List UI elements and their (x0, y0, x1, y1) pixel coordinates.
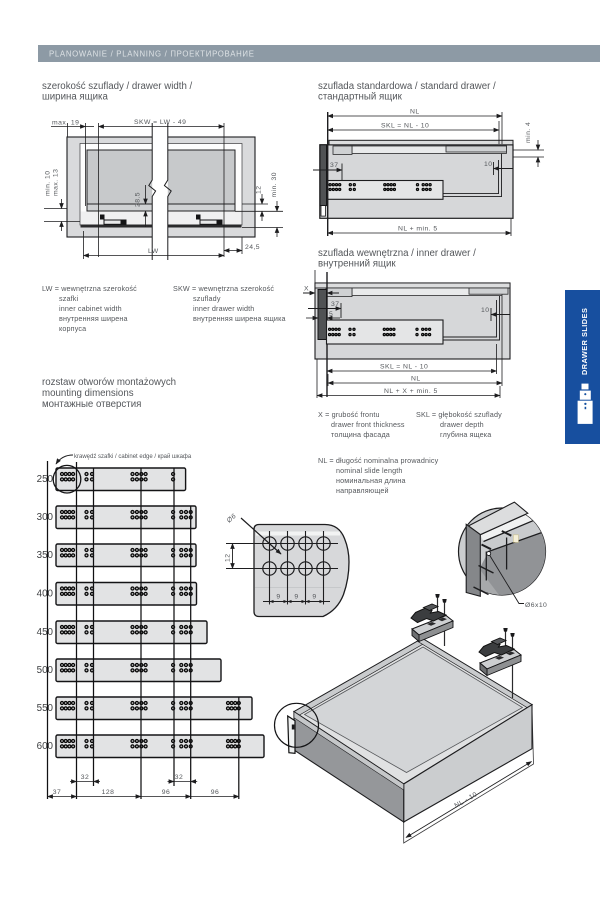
svg-text:корпуса: корпуса (59, 324, 86, 333)
svg-text:450: 450 (37, 627, 54, 638)
svg-text:толщина фасада: толщина фасада (331, 430, 390, 439)
svg-text:SKW = LW - 49: SKW = LW - 49 (134, 119, 186, 126)
svg-text:rozstaw otworów montażowych: rozstaw otworów montażowych (42, 377, 176, 388)
svg-text:NL = długość nominalna prowadn: NL = długość nominalna prowadnicy (318, 456, 439, 465)
svg-text:600: 600 (37, 741, 54, 752)
svg-text:DRAWER SLIDES: DRAWER SLIDES (580, 308, 589, 375)
svg-text:28.5: 28.5 (135, 192, 142, 207)
svg-text:9: 9 (276, 594, 280, 601)
svg-text:SKL = głębokość szuflady: SKL = głębokość szuflady (416, 410, 502, 419)
svg-text:12: 12 (225, 554, 232, 562)
svg-text:96: 96 (211, 789, 219, 796)
svg-text:внутренний ящик: внутренний ящик (318, 259, 396, 270)
svg-text:max. 19: max. 19 (52, 120, 79, 127)
svg-text:37: 37 (53, 789, 61, 796)
svg-text:NL + X + min. 5: NL + X + min. 5 (384, 388, 438, 395)
svg-text:mounting dimensions: mounting dimensions (42, 388, 134, 399)
svg-text:Ø6: Ø6 (225, 513, 238, 525)
svg-text:NL: NL (411, 376, 421, 383)
svg-text:37: 37 (331, 301, 339, 308)
svg-text:inner cabinet width: inner cabinet width (59, 304, 122, 313)
svg-text:внутренняя ширена: внутренняя ширена (59, 314, 128, 323)
svg-text:128: 128 (102, 789, 115, 796)
svg-text:250: 250 (37, 474, 54, 485)
svg-text:min. 30: min. 30 (271, 172, 278, 197)
svg-text:300: 300 (37, 512, 54, 523)
svg-text:szuflada standardowa / standar: szuflada standardowa / standard drawer / (318, 81, 496, 92)
svg-text:550: 550 (37, 703, 54, 714)
svg-text:10: 10 (484, 161, 492, 168)
svg-text:max. 13: max. 13 (53, 169, 60, 196)
svg-text:400: 400 (37, 589, 54, 600)
svg-text:монтажные отверстия: монтажные отверстия (42, 399, 141, 410)
svg-text:min. 10: min. 10 (45, 171, 52, 196)
svg-text:inner drawer width: inner drawer width (193, 304, 254, 313)
svg-text:drawer front thickness: drawer front thickness (331, 420, 405, 429)
svg-text:NL + min. 5: NL + min. 5 (398, 226, 438, 233)
svg-text:SKL = NL - 10: SKL = NL - 10 (381, 123, 429, 130)
svg-text:350: 350 (37, 550, 54, 561)
svg-text:9: 9 (294, 594, 298, 601)
svg-text:nominal slide length: nominal slide length (336, 466, 403, 475)
svg-text:szerokość szuflady / drawer wi: szerokość szuflady / drawer width / (42, 81, 193, 92)
svg-text:X: X (304, 286, 309, 293)
svg-text:32: 32 (175, 774, 183, 781)
svg-text:SKL = NL - 10: SKL = NL - 10 (380, 364, 428, 371)
svg-text:стандартный ящик: стандартный ящик (318, 92, 403, 103)
svg-text:глубина ящека: глубина ящека (440, 430, 491, 439)
svg-text:32: 32 (81, 774, 89, 781)
svg-text:szuflady: szuflady (193, 294, 221, 303)
svg-text:PLANOWANIE / PLANNING / ПРОЕКТ: PLANOWANIE / PLANNING / ПРОЕКТИРОВАНИЕ (49, 50, 255, 59)
svg-text:NL: NL (410, 109, 420, 116)
svg-text:LW = wewnętrzna szerokość: LW = wewnętrzna szerokość (42, 284, 137, 293)
svg-text:Ø6x10: Ø6x10 (525, 602, 547, 609)
svg-text:5: 5 (329, 311, 333, 318)
svg-text:96: 96 (162, 789, 170, 796)
svg-text:ширина ящика: ширина ящика (42, 92, 108, 103)
svg-text:X = grubość frontu: X = grubość frontu (318, 410, 380, 419)
svg-text:10: 10 (481, 307, 489, 314)
svg-text:500: 500 (37, 665, 54, 676)
svg-text:szuflada wewnętrzna / inner dr: szuflada wewnętrzna / inner drawer / (318, 248, 476, 259)
svg-text:krawędź szafki / cabinet edge: krawędź szafki / cabinet edge / край шка… (74, 453, 192, 460)
svg-text:номинальная длина: номинальная длина (336, 476, 406, 485)
svg-text:9: 9 (312, 594, 316, 601)
svg-text:12: 12 (256, 186, 263, 194)
svg-text:drawer depth: drawer depth (440, 420, 484, 429)
svg-text:min. 4: min. 4 (525, 122, 532, 143)
svg-text:SKW = wewnętrzna szerokość: SKW = wewnętrzna szerokość (173, 284, 274, 293)
svg-text:LW: LW (148, 248, 159, 255)
svg-text:37: 37 (330, 162, 338, 169)
svg-text:szafki: szafki (59, 294, 79, 303)
svg-text:внутренняя ширена ящика: внутренняя ширена ящика (193, 314, 286, 323)
svg-text:24,5: 24,5 (245, 244, 260, 251)
svg-text:направляющей: направляющей (336, 486, 389, 495)
